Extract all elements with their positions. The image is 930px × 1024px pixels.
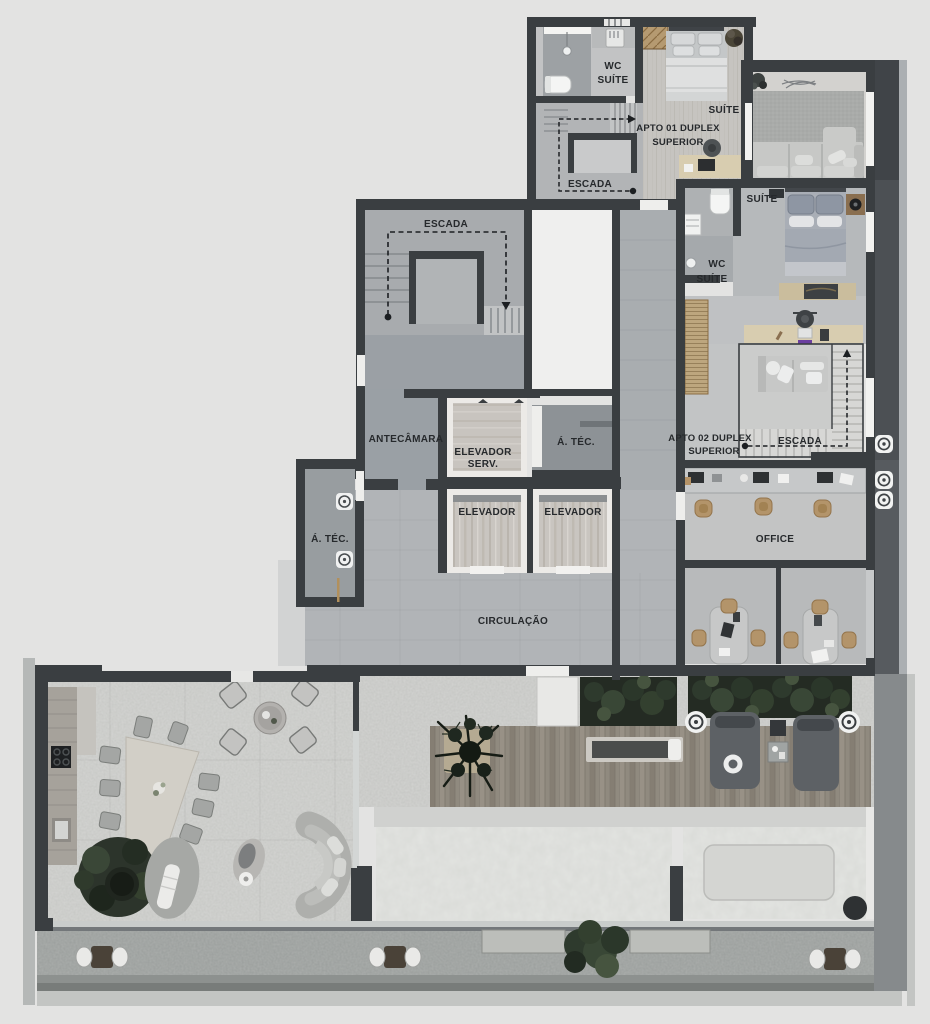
svg-text:SUPERIOR: SUPERIOR xyxy=(688,446,739,457)
svg-text:ESCADA: ESCADA xyxy=(568,179,612,190)
svg-text:ELEVADOR: ELEVADOR xyxy=(454,447,512,458)
svg-text:ELEVADOR: ELEVADOR xyxy=(544,507,602,518)
svg-text:SERV.: SERV. xyxy=(468,459,498,470)
svg-text:SUÍTE: SUÍTE xyxy=(709,103,740,116)
svg-text:ELEVADOR: ELEVADOR xyxy=(458,507,516,518)
svg-text:APTO 02 DUPLEX: APTO 02 DUPLEX xyxy=(668,433,752,444)
svg-text:SUÍTE: SUÍTE xyxy=(697,272,728,285)
svg-text:OFFICE: OFFICE xyxy=(756,534,794,545)
svg-text:WC: WC xyxy=(708,259,725,270)
svg-text:APTO 01 DUPLEX: APTO 01 DUPLEX xyxy=(636,123,720,134)
svg-text:SUPERIOR: SUPERIOR xyxy=(652,137,703,148)
svg-text:Á. TÉC.: Á. TÉC. xyxy=(557,435,595,448)
svg-text:WC: WC xyxy=(604,61,621,72)
svg-text:CIRCULAÇÃO: CIRCULAÇÃO xyxy=(478,614,548,627)
svg-text:ESCADA: ESCADA xyxy=(778,436,822,447)
svg-text:SUÍTE: SUÍTE xyxy=(598,73,629,86)
svg-text:ESCADA: ESCADA xyxy=(424,219,468,230)
svg-text:Á. TÉC.: Á. TÉC. xyxy=(311,532,349,545)
svg-text:ANTECÂMARA: ANTECÂMARA xyxy=(369,432,444,445)
svg-text:SUÍTE: SUÍTE xyxy=(747,192,778,205)
